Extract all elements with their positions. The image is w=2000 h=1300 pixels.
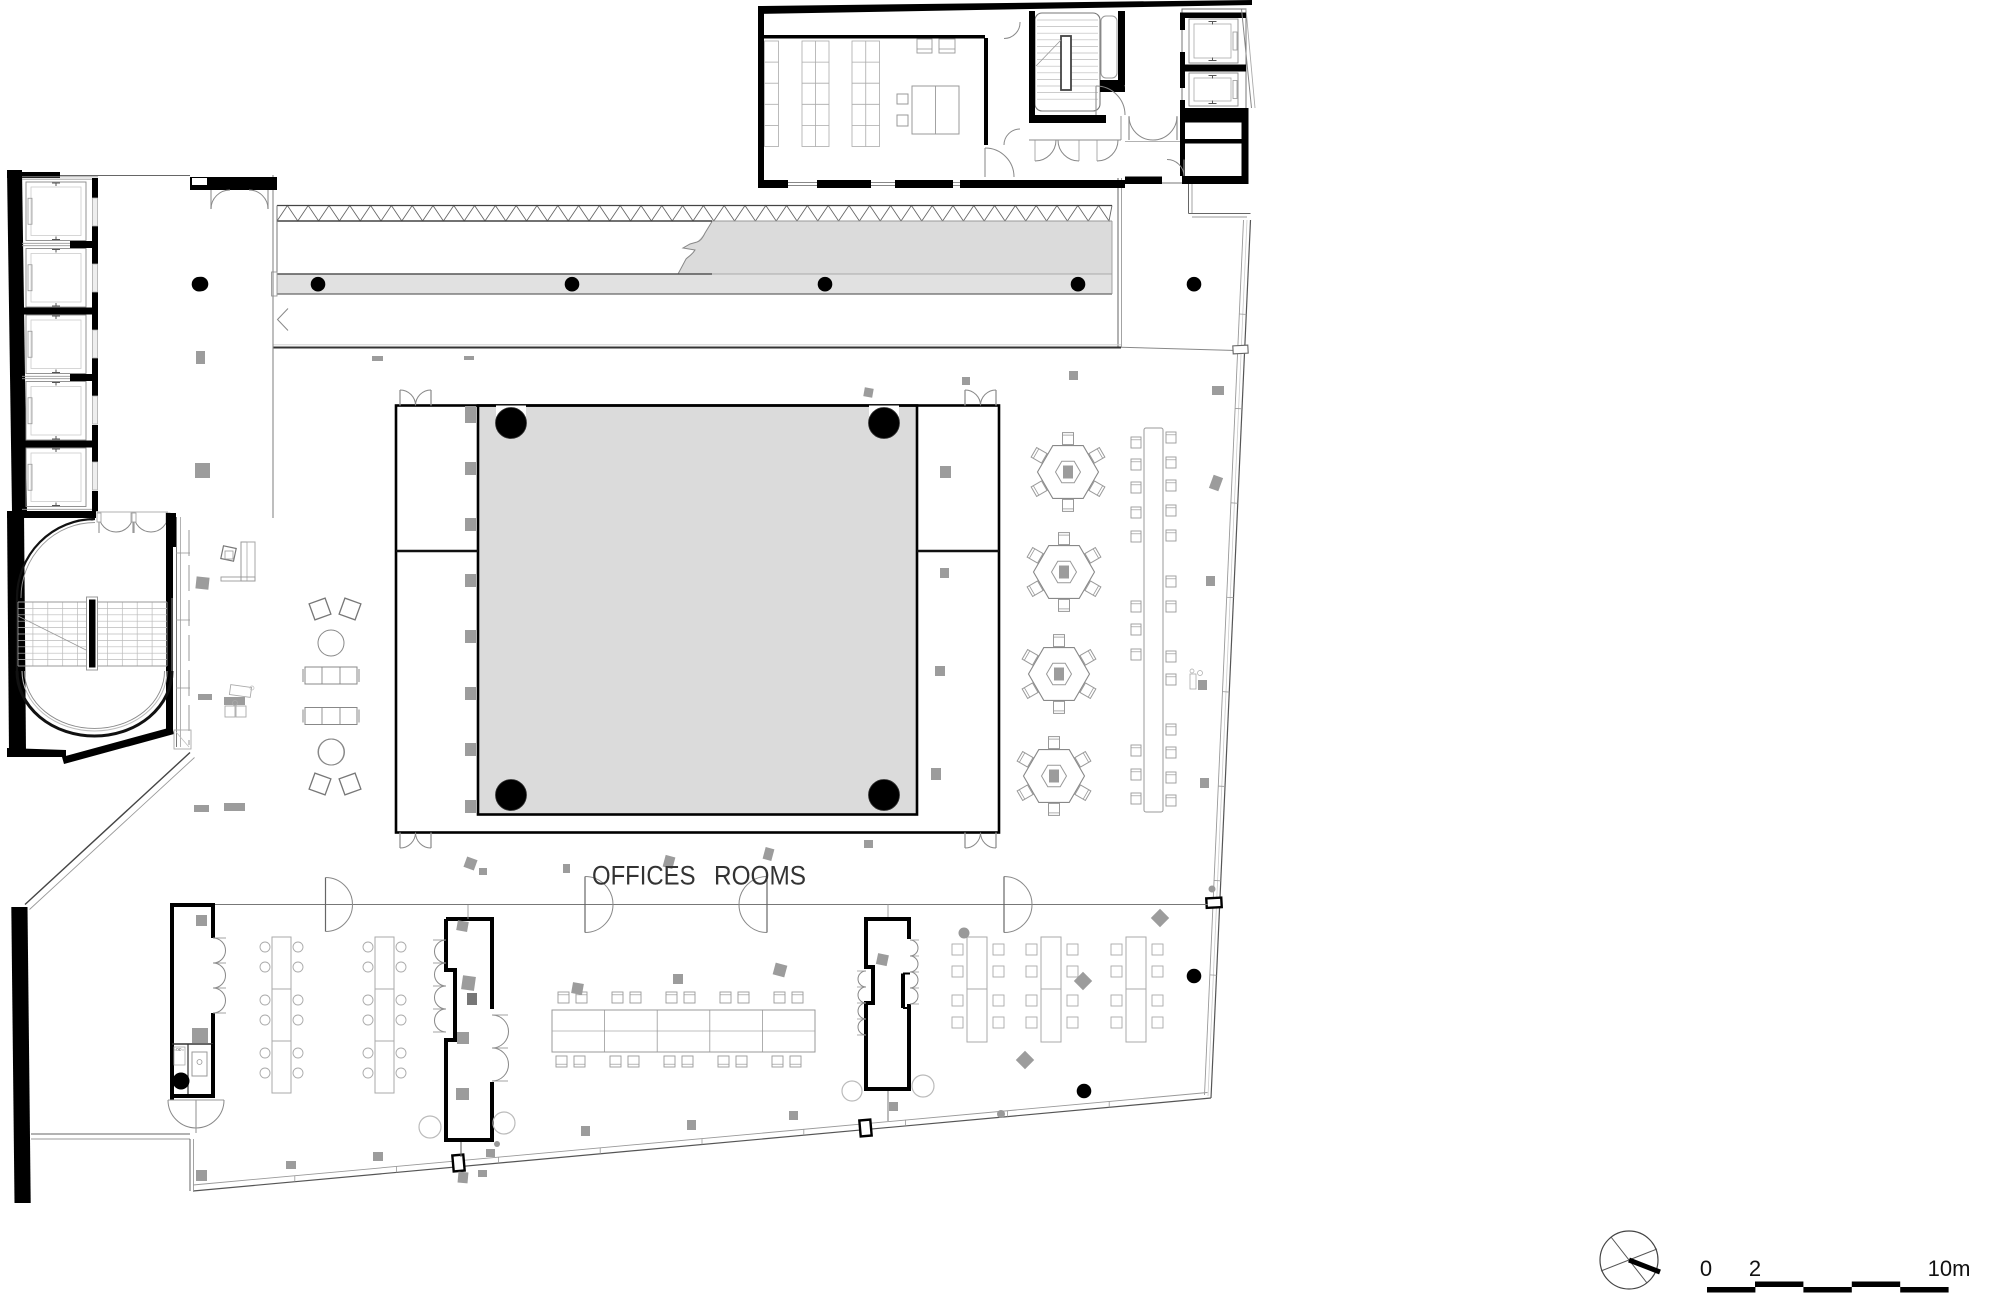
svg-text:10m: 10m (1928, 1256, 1971, 1281)
svg-text:OFFICES: OFFICES (592, 861, 696, 891)
svg-text:oo: oo (176, 1047, 182, 1053)
svg-text:ROOMS: ROOMS (714, 861, 806, 891)
svg-text:2: 2 (1749, 1256, 1761, 1281)
svg-text:0: 0 (1700, 1256, 1712, 1281)
